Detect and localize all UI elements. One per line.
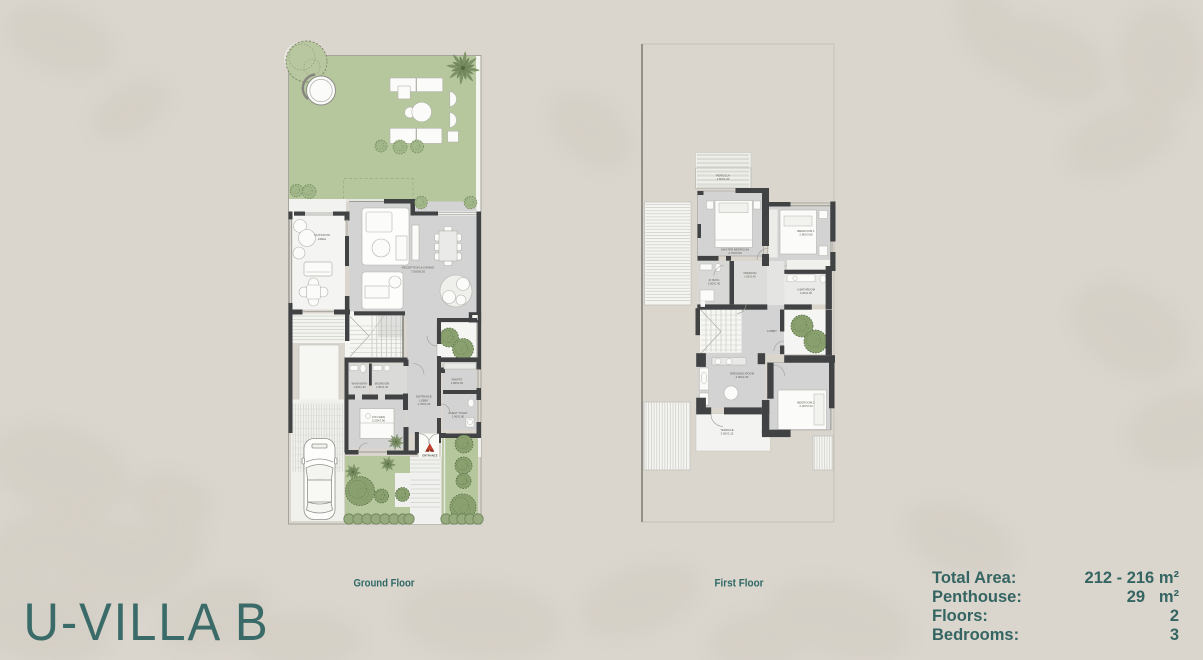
svg-text:2: 2 xyxy=(1170,607,1179,625)
svg-text:U-VILLA B: U-VILLA B xyxy=(24,593,270,652)
svg-text:A.BATHROOM: A.BATHROOM xyxy=(797,288,816,292)
svg-text:PANTRY: PANTRY xyxy=(452,378,463,382)
svg-text:Ground Floor: Ground Floor xyxy=(354,578,416,590)
svg-text:MUDROOM: MUDROOM xyxy=(375,382,390,386)
svg-text:212 - 216 m²: 212 - 216 m² xyxy=(1085,569,1180,587)
svg-text:2.80X3.60: 2.80X3.60 xyxy=(799,233,813,237)
svg-text:Total Area:: Total Area: xyxy=(932,569,1016,587)
svg-text:2.70X3.60: 2.70X3.60 xyxy=(728,251,742,255)
svg-text:3: 3 xyxy=(1170,626,1179,644)
svg-text:ENTRANCE: ENTRANCE xyxy=(422,454,438,458)
svg-text:3.20X3.90: 3.20X3.90 xyxy=(372,419,386,423)
svg-text:M. BATH: M. BATH xyxy=(709,278,720,282)
svg-text:Penthouse:: Penthouse: xyxy=(932,588,1022,606)
svg-text:GUEST TOILET: GUEST TOILET xyxy=(448,411,468,415)
svg-text:WASH BATH: WASH BATH xyxy=(352,382,368,386)
svg-text:2.60X2.40: 2.60X2.40 xyxy=(736,375,749,379)
svg-text:AREA: AREA xyxy=(318,237,327,241)
svg-text:29 m²: 29 m² xyxy=(1127,588,1180,606)
svg-text:1.80X1.60: 1.80X1.60 xyxy=(451,381,464,385)
svg-text:3.50X2.15: 3.50X2.15 xyxy=(721,432,734,436)
svg-text:Bedrooms:: Bedrooms: xyxy=(932,626,1019,644)
svg-text:1.60X1.20: 1.60X1.20 xyxy=(717,177,730,181)
svg-text:1.90X1.80: 1.90X1.80 xyxy=(452,415,465,419)
svg-text:2.40X3.00: 2.40X3.00 xyxy=(799,404,813,408)
svg-text:1.90X1.30: 1.90X1.30 xyxy=(353,385,366,389)
svg-text:LOBBY: LOBBY xyxy=(767,329,777,333)
svg-text:7.50X8.20: 7.50X8.20 xyxy=(411,269,425,273)
svg-text:First Floor: First Floor xyxy=(715,578,765,590)
svg-text:2.60X1.40: 2.60X1.40 xyxy=(708,282,721,286)
svg-text:2.20X1.80: 2.20X1.80 xyxy=(800,291,813,295)
svg-text:1.60X1.40: 1.60X1.40 xyxy=(744,275,756,278)
svg-text:Floors:: Floors: xyxy=(932,607,988,625)
svg-text:1.90X1.30: 1.90X1.30 xyxy=(376,385,389,389)
svg-text:1.70X2.20: 1.70X2.20 xyxy=(418,402,431,406)
